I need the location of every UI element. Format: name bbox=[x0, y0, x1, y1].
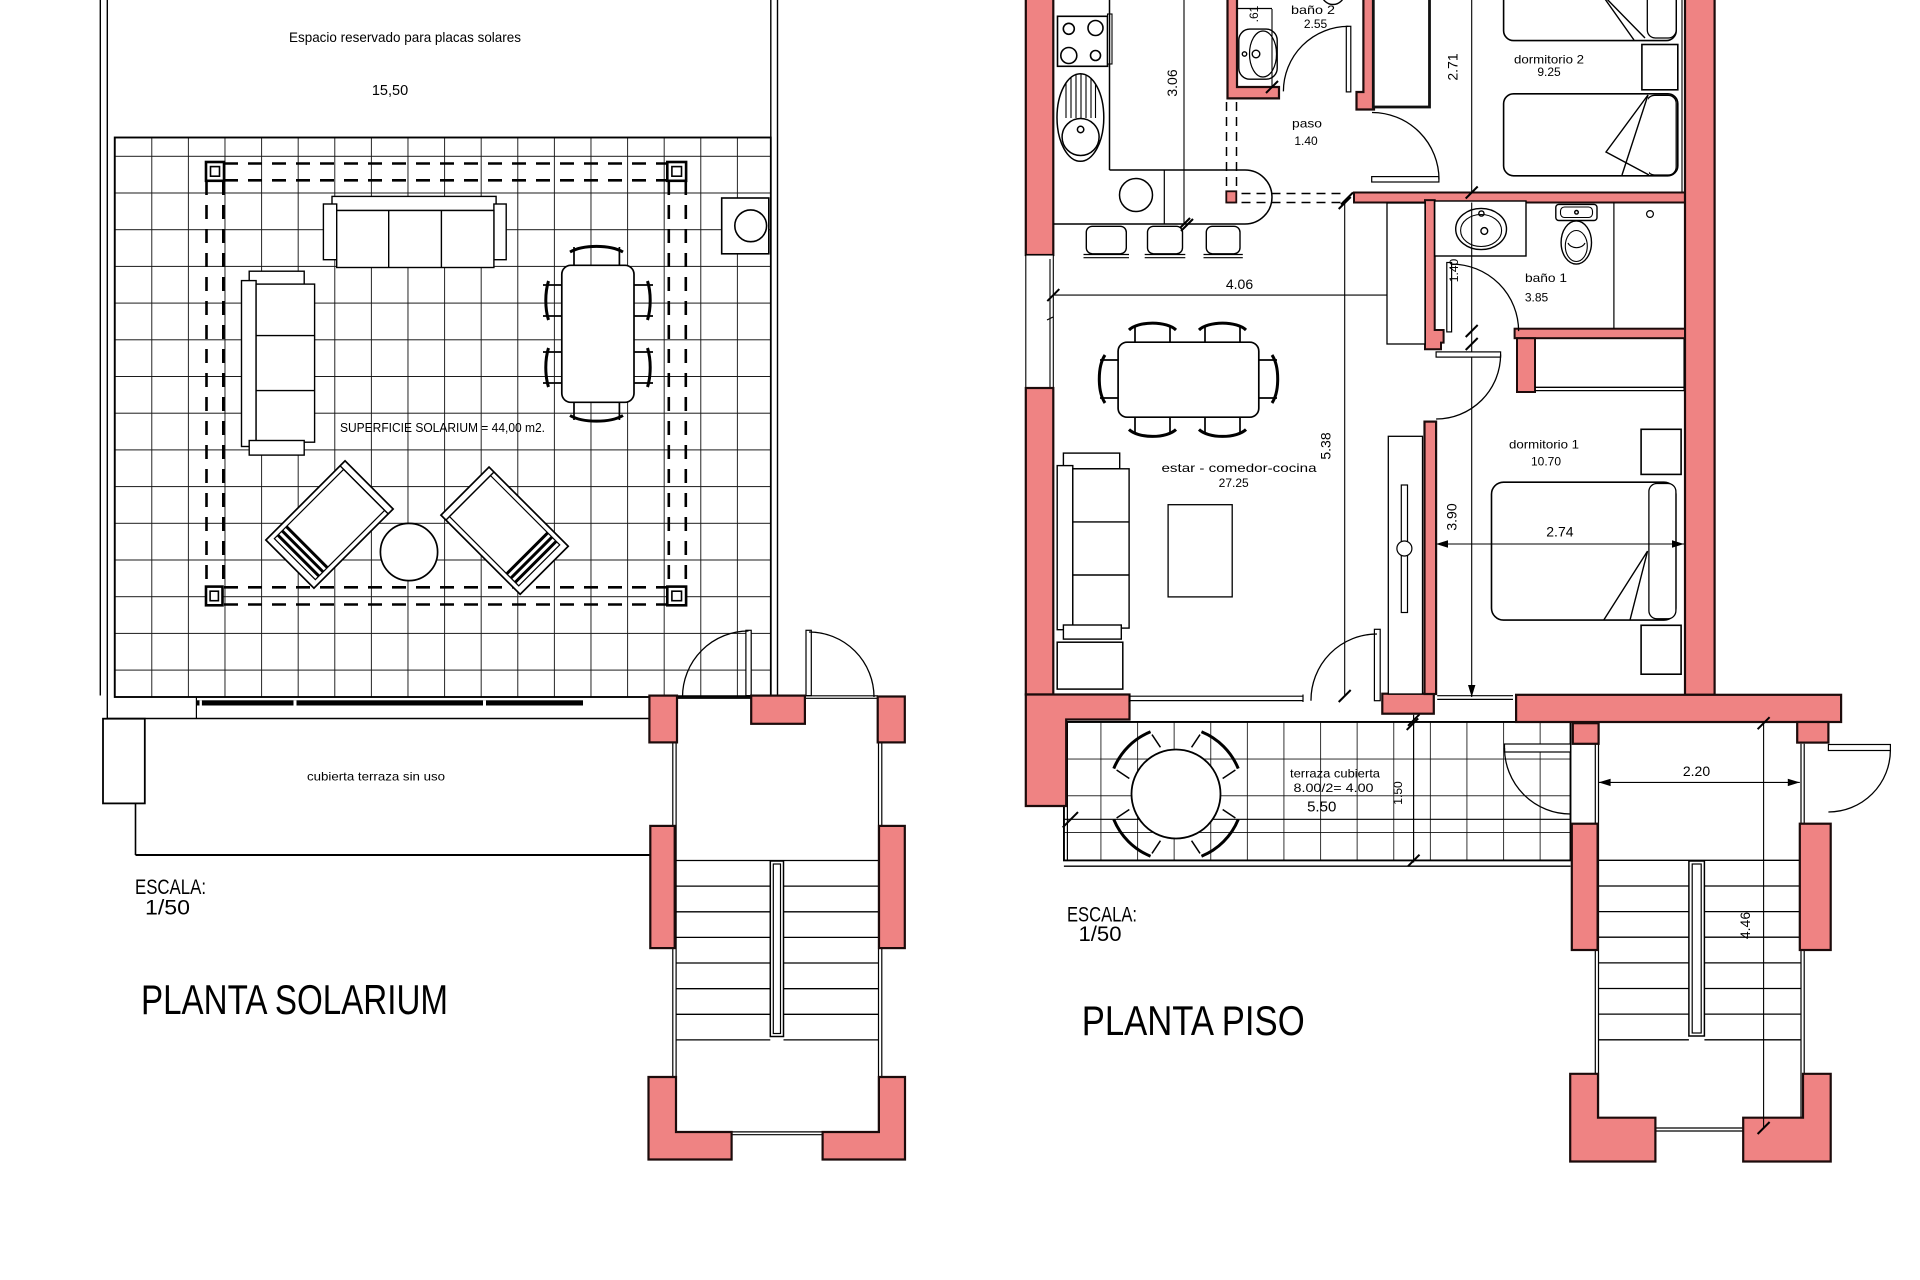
svg-text:3.90: 3.90 bbox=[1444, 503, 1460, 530]
svg-text:1.40: 1.40 bbox=[1294, 134, 1318, 148]
svg-text:10.70: 10.70 bbox=[1531, 455, 1561, 469]
svg-text:5.50: 5.50 bbox=[1307, 799, 1336, 816]
svg-text:2.74: 2.74 bbox=[1546, 523, 1573, 539]
svg-text:3.06: 3.06 bbox=[1164, 69, 1180, 96]
svg-text:4.46: 4.46 bbox=[1737, 912, 1753, 939]
svg-text:27.25: 27.25 bbox=[1219, 476, 1249, 490]
svg-text:5.38: 5.38 bbox=[1318, 432, 1334, 459]
svg-text:terraza cubierta: terraza cubierta bbox=[1290, 767, 1380, 781]
svg-text:1/50: 1/50 bbox=[1079, 923, 1122, 946]
svg-text:baño 1: baño 1 bbox=[1525, 271, 1567, 285]
svg-text:cubierta terraza sin uso: cubierta terraza sin uso bbox=[307, 770, 445, 784]
svg-text:paso: paso bbox=[1292, 117, 1322, 131]
svg-text:Espacio reservado para plac: Espacio reservado para placas solares bbox=[289, 29, 521, 45]
svg-text:4.06: 4.06 bbox=[1226, 276, 1253, 292]
svg-text:9.25: 9.25 bbox=[1537, 65, 1561, 79]
svg-text:1.50: 1.50 bbox=[1391, 781, 1405, 805]
svg-text:2.71: 2.71 bbox=[1445, 53, 1461, 80]
svg-text:15,50: 15,50 bbox=[372, 83, 408, 99]
svg-text:1/50: 1/50 bbox=[145, 897, 190, 920]
svg-text:3.85: 3.85 bbox=[1525, 291, 1549, 305]
svg-text:PLANTA SOLARIUM: PLANTA SOLARIUM bbox=[141, 976, 448, 1023]
svg-text:estar - comedor-cocina: estar - comedor-cocina bbox=[1162, 461, 1317, 475]
svg-text:PLANTA PISO: PLANTA PISO bbox=[1082, 997, 1305, 1044]
svg-text:8.00/2= 4.00: 8.00/2= 4.00 bbox=[1294, 781, 1374, 795]
svg-text:1.40: 1.40 bbox=[1447, 258, 1461, 282]
svg-text:.61: .61 bbox=[1247, 5, 1261, 22]
svg-text:baño 2: baño 2 bbox=[1291, 3, 1335, 17]
svg-text:dormitorio 1: dormitorio 1 bbox=[1509, 438, 1579, 452]
svg-text:SUPERFICIE SOLARIUM = 44,00: SUPERFICIE SOLARIUM = 44,00 m2. bbox=[340, 420, 545, 435]
svg-text:2.55: 2.55 bbox=[1304, 17, 1328, 31]
svg-text:2.20: 2.20 bbox=[1683, 763, 1710, 779]
